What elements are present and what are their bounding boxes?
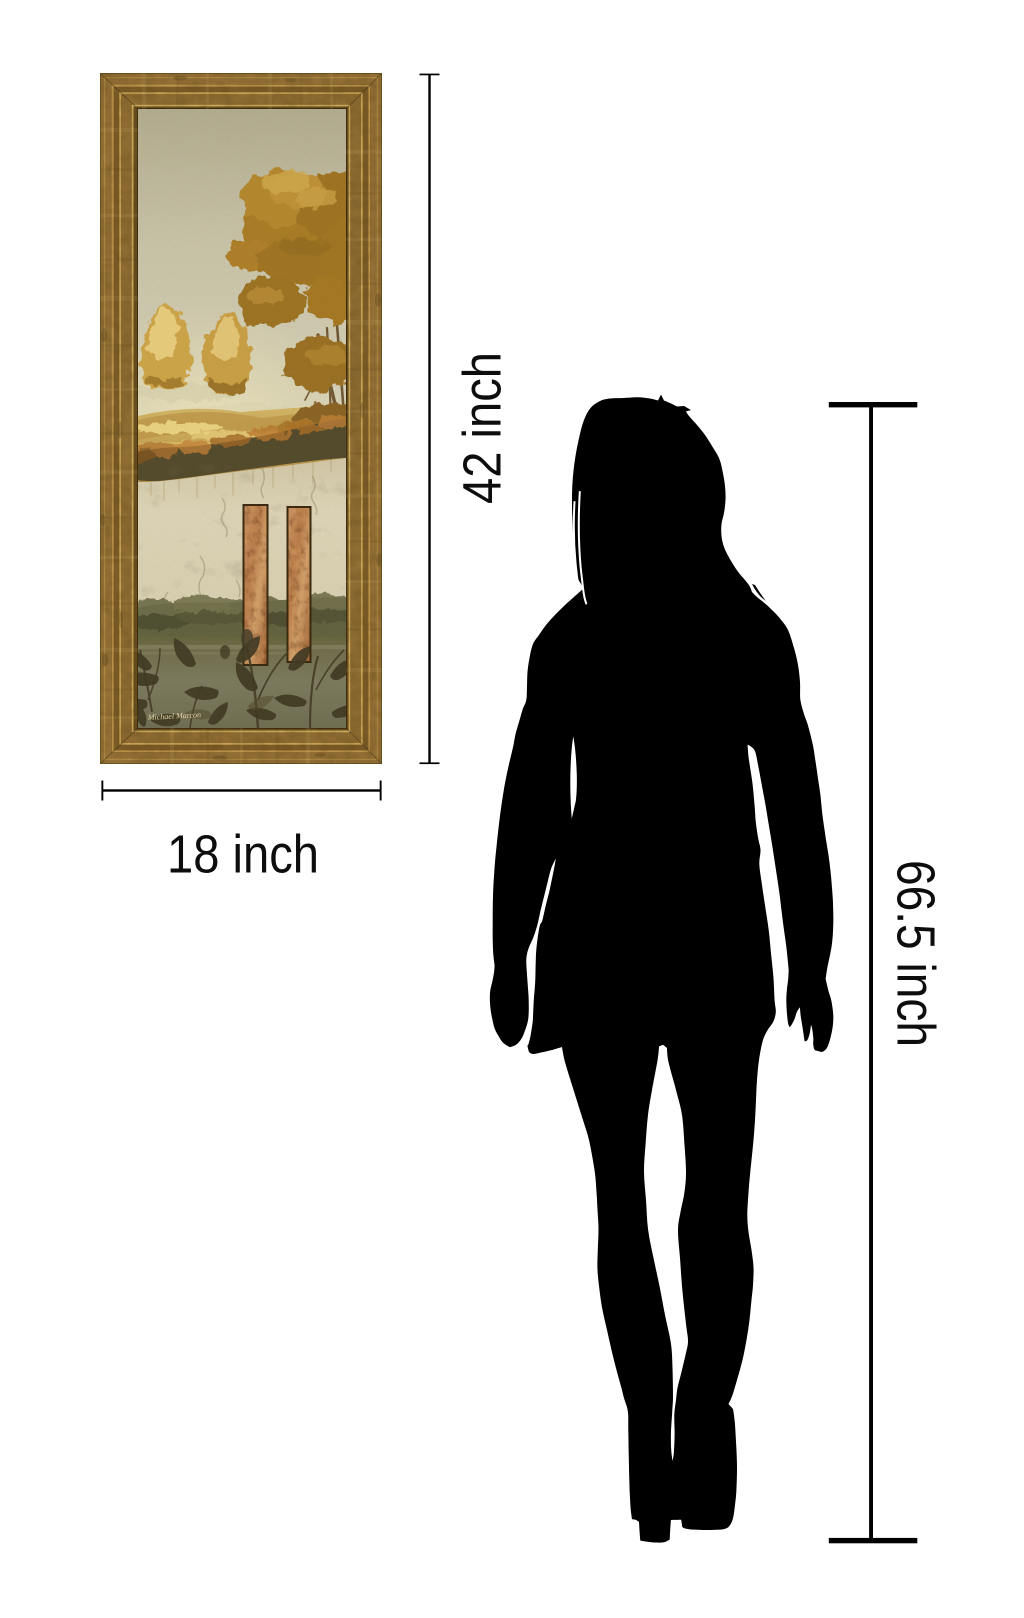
- svg-text:42 inch: 42 inch: [453, 352, 513, 504]
- svg-text:66.5 inch: 66.5 inch: [886, 860, 946, 1047]
- svg-text:18 inch: 18 inch: [167, 825, 319, 885]
